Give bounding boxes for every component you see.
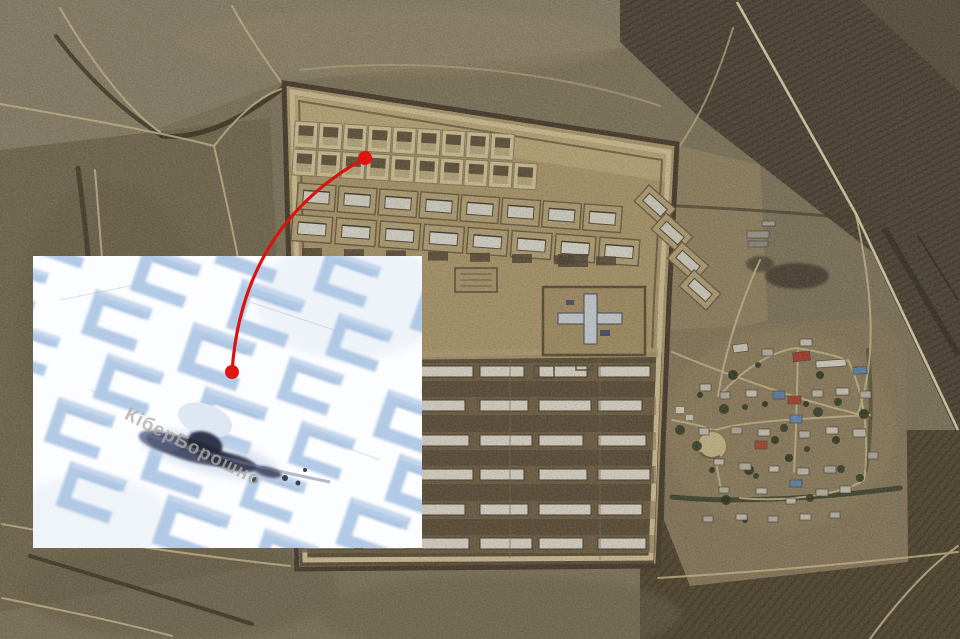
satellite-scene: КіберБорошно (0, 0, 960, 639)
annotation-dot-main (358, 151, 372, 165)
annotation-dot-inset (225, 365, 239, 379)
satellite-annotated-image: КіберБорошно (0, 0, 960, 639)
